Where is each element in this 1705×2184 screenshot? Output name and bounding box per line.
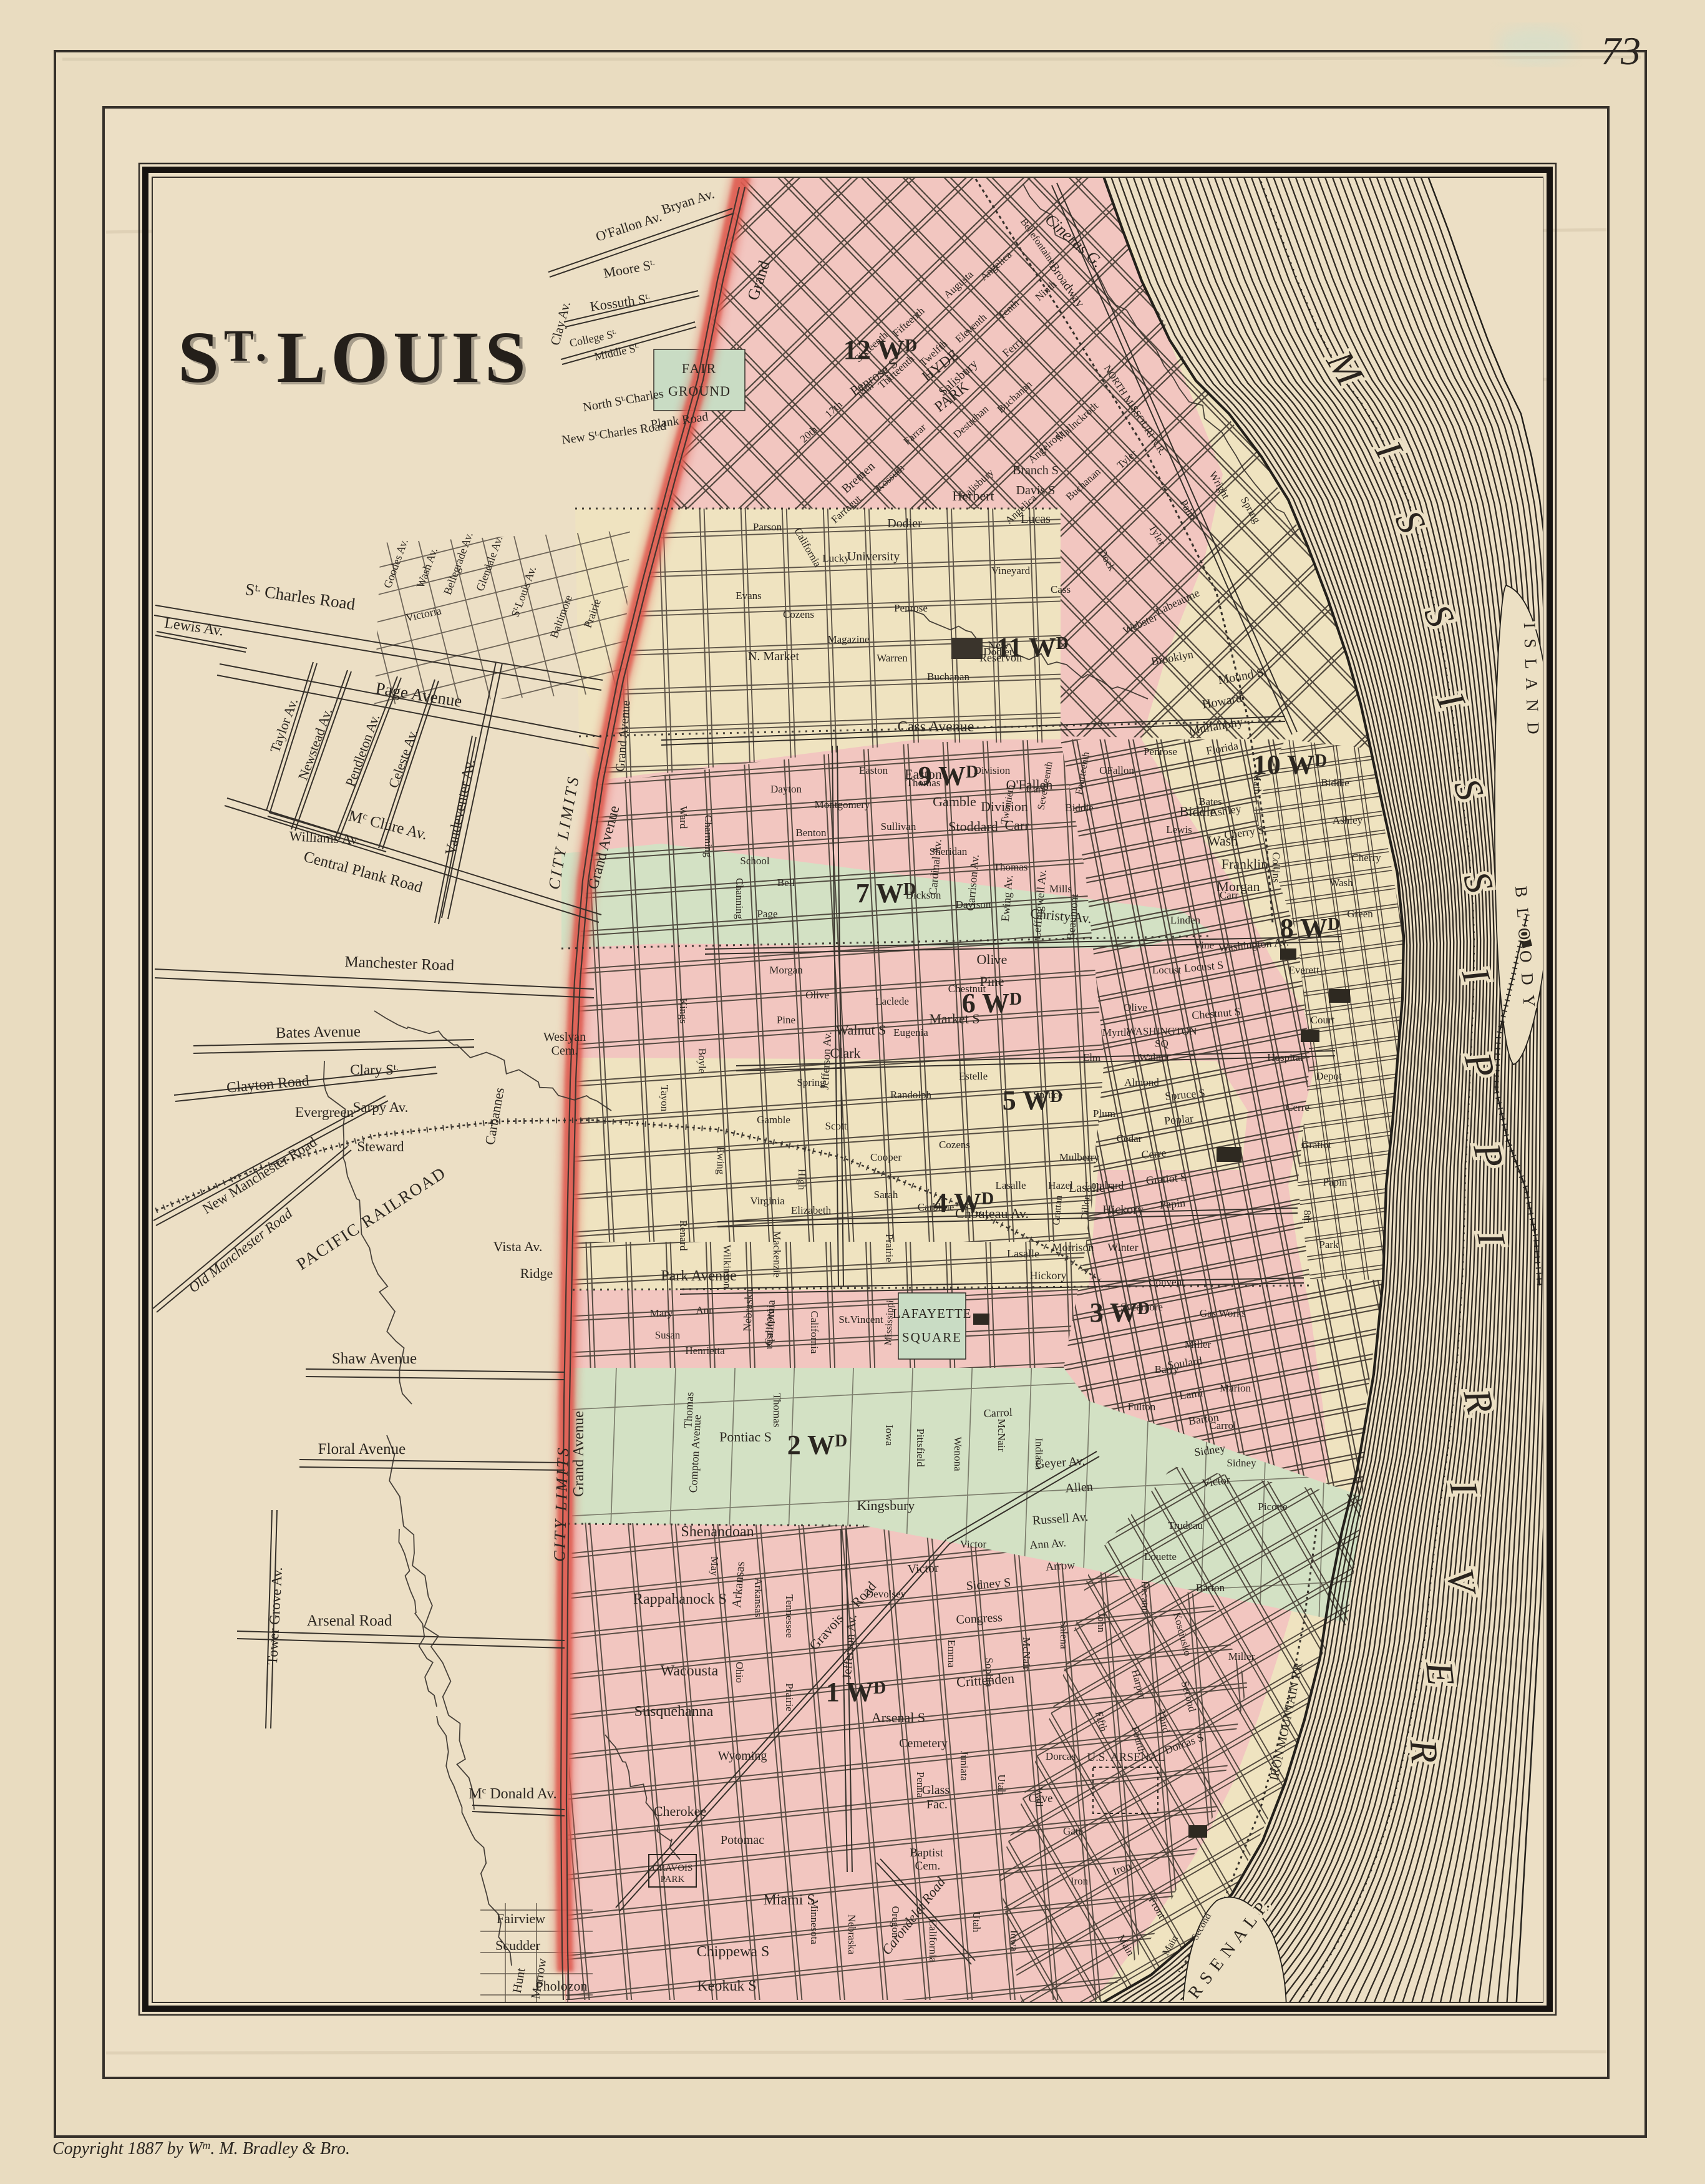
svg-text:Kings: Kings — [678, 998, 689, 1024]
svg-text:Picotte: Picotte — [1258, 1501, 1287, 1513]
svg-text:Iron: Iron — [1071, 1875, 1089, 1887]
svg-text:Boyle: Boyle — [696, 1048, 708, 1074]
svg-text:St.Vincent: St.Vincent — [838, 1314, 883, 1325]
svg-text:Scott: Scott — [825, 1120, 847, 1132]
svg-text:Papin: Papin — [1159, 1196, 1186, 1211]
svg-text:Sycamore: Sycamore — [1120, 1301, 1163, 1313]
svg-text:Magazine: Magazine — [827, 633, 869, 645]
svg-text:FAIR: FAIR — [682, 361, 717, 376]
svg-text:Vista Av.: Vista Av. — [493, 1239, 543, 1254]
svg-text:Almond: Almond — [1124, 1076, 1159, 1088]
svg-text:Park: Park — [1319, 1239, 1339, 1250]
svg-text:Dorcas: Dorcas — [1046, 1750, 1076, 1762]
svg-text:Miami S: Miami S — [763, 1892, 815, 1908]
svg-text:Prairie: Prairie — [883, 1234, 895, 1262]
svg-text:Carrol: Carrol — [983, 1406, 1013, 1420]
svg-text:Mc Donald Av.: Mc Donald Av. — [469, 1786, 556, 1802]
svg-text:Benton: Benton — [795, 827, 827, 839]
svg-text:Lasalle: Lasalle — [995, 1179, 1026, 1191]
svg-text:E: E — [1417, 1659, 1462, 1688]
svg-text:Trudeau: Trudeau — [1168, 1519, 1203, 1531]
svg-text:Salena: Salena — [1058, 1621, 1070, 1649]
svg-text:Grand Avenue: Grand Avenue — [571, 1411, 587, 1497]
svg-text:U.S. ARSENAL: U.S. ARSENAL — [1087, 1751, 1165, 1764]
svg-text:Randolph: Randolph — [890, 1089, 932, 1101]
svg-text:Ohio: Ohio — [734, 1662, 746, 1683]
svg-text:Green: Green — [1347, 908, 1373, 920]
svg-text:Morgan: Morgan — [769, 964, 803, 976]
svg-text:Ashley: Ashley — [1333, 814, 1363, 826]
svg-text:Marion: Marion — [1220, 1382, 1251, 1394]
svg-text:Potomac: Potomac — [721, 1833, 764, 1847]
svg-text:Math: Math — [1251, 772, 1263, 794]
svg-text:May: May — [709, 1556, 721, 1576]
svg-text:Sheridan: Sheridan — [930, 846, 968, 857]
svg-text:Mills: Mills — [1049, 883, 1072, 895]
svg-text:Hickory: Hickory — [1102, 1203, 1144, 1217]
svg-text:SQUARE: SQUARE — [902, 1330, 962, 1345]
svg-text:Susquehanna: Susquehanna — [634, 1704, 714, 1720]
svg-text:Ewing: Ewing — [715, 1147, 727, 1175]
svg-text:Olive: Olive — [977, 952, 1008, 967]
svg-text:Juniata: Juniata — [958, 1751, 970, 1782]
svg-text:High: High — [796, 1169, 808, 1191]
svg-text:Eugenia: Eugenia — [893, 1026, 928, 1038]
svg-text:Arkansas: Arkansas — [752, 1577, 764, 1617]
svg-text:Prairie: Prairie — [784, 1683, 795, 1711]
svg-text:Cem.: Cem. — [915, 1860, 941, 1873]
svg-text:Cedar: Cedar — [1117, 1133, 1142, 1144]
svg-text:SQ: SQ — [1155, 1038, 1168, 1050]
svg-text:Clary St.: Clary St. — [350, 1062, 399, 1078]
svg-text:Montgomery: Montgomery — [815, 799, 870, 811]
svg-text:Barry: Barry — [1155, 1363, 1179, 1375]
svg-text:Wilkinson: Wilkinson — [721, 1245, 733, 1289]
svg-text:School: School — [740, 855, 770, 867]
svg-text:University: University — [847, 550, 900, 563]
svg-text:Gas Works: Gas Works — [1200, 1307, 1246, 1319]
svg-text:Papin: Papin — [1323, 1176, 1348, 1188]
svg-text:Plum: Plum — [1093, 1108, 1115, 1119]
svg-text:Elizabeth: Elizabeth — [791, 1204, 832, 1216]
svg-text:Baptist: Baptist — [910, 1846, 944, 1860]
svg-text:Estelle: Estelle — [959, 1070, 988, 1082]
svg-text:Utah: Utah — [996, 1774, 1008, 1795]
svg-text:Parson: Parson — [753, 521, 782, 533]
svg-text:Everett: Everett — [1288, 964, 1319, 976]
svg-text:Tennessee: Tennessee — [784, 1594, 795, 1638]
svg-text:Cozens: Cozens — [939, 1139, 970, 1151]
svg-text:Minnesota: Minnesota — [809, 1899, 820, 1944]
svg-text:Lucky: Lucky — [822, 552, 850, 564]
svg-text:Iowa: Iowa — [883, 1425, 895, 1446]
svg-text:Bates Avenue: Bates Avenue — [275, 1023, 361, 1041]
svg-text:Mulberry: Mulberry — [1059, 1151, 1100, 1163]
svg-text:Cooper: Cooper — [870, 1151, 901, 1163]
svg-text:Carrol: Carrol — [1209, 1420, 1236, 1431]
svg-text:Utah: Utah — [971, 1911, 983, 1933]
svg-text:Wacousta: Wacousta — [661, 1663, 719, 1679]
svg-text:Hickory: Hickory — [1030, 1269, 1067, 1282]
svg-text:Sarah: Sarah — [874, 1189, 898, 1201]
svg-text:California: California — [927, 1919, 939, 1962]
svg-text:Convent: Convent — [1149, 1276, 1185, 1288]
svg-text:Devolsey: Devolsey — [866, 1588, 906, 1600]
svg-text:Fac.: Fac. — [926, 1798, 948, 1811]
svg-text:Elm: Elm — [1083, 1051, 1100, 1063]
svg-text:Carr: Carr — [1026, 783, 1046, 795]
svg-text:Victor: Victor — [960, 1538, 987, 1550]
svg-text:Reservoir: Reservoir — [979, 651, 1023, 664]
svg-text:Nebraska: Nebraska — [741, 1289, 755, 1332]
svg-text:Cerre: Cerre — [1286, 1101, 1309, 1113]
svg-text:Walnut: Walnut — [1139, 1051, 1170, 1063]
svg-text:Hospital: Hospital — [1267, 1051, 1303, 1063]
svg-text:McNair: McNair — [996, 1419, 1008, 1452]
svg-text:Lewis: Lewis — [1166, 824, 1192, 836]
svg-text:Franklin: Franklin — [1222, 856, 1268, 872]
svg-text:Penrose: Penrose — [1144, 746, 1177, 758]
svg-text:California: California — [809, 1311, 820, 1354]
svg-text:John: John — [1095, 1612, 1107, 1633]
svg-text:LAFAYETTE: LAFAYETTE — [893, 1306, 972, 1321]
svg-text:Collins: Collins — [1270, 852, 1282, 882]
svg-text:Emma: Emma — [946, 1640, 958, 1668]
svg-text:Cherokee: Cherokee — [654, 1803, 706, 1819]
svg-text:Thomas: Thomas — [771, 1393, 783, 1428]
svg-text:Wenona: Wenona — [952, 1436, 964, 1471]
svg-text:Arsenal S: Arsenal S — [872, 1710, 925, 1725]
svg-text:Cozens: Cozens — [783, 608, 814, 620]
svg-text:Carr: Carr — [1220, 889, 1239, 901]
svg-text:Bell: Bell — [777, 877, 795, 889]
svg-text:Dayton: Dayton — [770, 783, 802, 795]
svg-text:Cemetery: Cemetery — [899, 1737, 948, 1750]
svg-text:I S L A N D: I S L A N D — [1520, 622, 1543, 738]
svg-text:Carbline: Carbline — [918, 1201, 955, 1213]
svg-text:Rappahanock S: Rappahanock S — [633, 1591, 727, 1607]
svg-text:Court: Court — [1311, 1014, 1335, 1026]
svg-text:Floral Avenue: Floral Avenue — [318, 1441, 406, 1458]
svg-text:Renard: Renard — [678, 1220, 689, 1251]
svg-text:Gamble: Gamble — [757, 1114, 790, 1126]
svg-text:Cem.: Cem. — [551, 1044, 578, 1058]
svg-text:Miller: Miller — [1228, 1650, 1255, 1662]
svg-text:Channing: Channing — [734, 878, 746, 920]
svg-text:Clark: Clark — [830, 1045, 861, 1061]
svg-text:Biddle: Biddle — [1321, 777, 1349, 789]
svg-text:Ann Av.: Ann Av. — [1029, 1536, 1067, 1551]
svg-text:Bates: Bates — [1198, 796, 1222, 807]
svg-text:OFallon: OFallon — [1099, 764, 1134, 776]
svg-text:Walnut S: Walnut S — [836, 1022, 887, 1038]
svg-text:R: R — [1402, 1737, 1446, 1765]
svg-text:Fairview: Fairview — [497, 1911, 545, 1926]
svg-text:Winter: Winter — [1107, 1241, 1138, 1254]
svg-text:Scudder: Scudder — [495, 1938, 541, 1953]
svg-text:Linden: Linden — [1170, 914, 1201, 926]
svg-text:Pittsfield: Pittsfield — [915, 1428, 926, 1467]
svg-text:Lucas: Lucas — [1021, 512, 1051, 526]
svg-text:Olive: Olive — [1124, 1002, 1147, 1013]
svg-text:Ward: Ward — [678, 806, 689, 829]
svg-text:Oregon: Oregon — [890, 1906, 901, 1938]
svg-text:Evergreen: Evergreen — [295, 1104, 354, 1120]
svg-text:Henrietta: Henrietta — [685, 1345, 725, 1357]
svg-text:Pontiac S: Pontiac S — [719, 1429, 772, 1445]
svg-text:Evans: Evans — [736, 590, 762, 602]
svg-text:Wash: Wash — [1329, 877, 1353, 889]
svg-text:Division: Division — [974, 764, 1011, 776]
svg-text:Steward: Steward — [357, 1139, 404, 1154]
svg-text:Davis S: Davis S — [1016, 484, 1056, 497]
svg-text:Ann: Ann — [696, 1304, 714, 1316]
svg-text:Louette: Louette — [1144, 1551, 1177, 1562]
svg-text:Sarpy Av.: Sarpy Av. — [353, 1099, 409, 1115]
svg-text:Locust: Locust — [1152, 964, 1182, 976]
svg-text:Myrtle: Myrtle — [1102, 1026, 1131, 1038]
svg-text:Lasalle: Lasalle — [1007, 1247, 1039, 1260]
svg-text:Gratiot: Gratiot — [1301, 1139, 1331, 1151]
svg-text:Charming: Charming — [702, 815, 714, 857]
svg-text:Wyoming: Wyoming — [718, 1749, 767, 1763]
svg-text:Cerre: Cerre — [1141, 1146, 1167, 1161]
svg-text:Sullivan: Sullivan — [881, 821, 916, 832]
svg-text:Wall: Wall — [1033, 1787, 1045, 1807]
svg-text:Sophia: Sophia — [983, 1657, 995, 1687]
svg-text:Spring: Spring — [797, 1076, 825, 1088]
svg-text:Vineyard: Vineyard — [991, 565, 1031, 577]
svg-text:Ridge: Ridge — [520, 1265, 553, 1281]
svg-text:Poplar: Poplar — [1163, 1112, 1194, 1127]
svg-text:Stoddard: Stoddard — [948, 819, 998, 834]
svg-text:Victor: Victor — [907, 1561, 939, 1577]
svg-text:Thomas: Thomas — [994, 861, 1028, 873]
svg-text:Cherry: Cherry — [1351, 852, 1381, 864]
svg-text:PARK: PARK — [661, 1874, 685, 1884]
svg-text:Allen: Allen — [1065, 1480, 1094, 1495]
svg-text:Kingsbury: Kingsbury — [857, 1498, 915, 1513]
svg-text:Barton: Barton — [1196, 1582, 1225, 1594]
svg-text:Pholozon: Pholozon — [535, 1978, 587, 1994]
svg-text:Easton: Easton — [859, 764, 888, 776]
svg-text:Morrison: Morrison — [1052, 1241, 1094, 1254]
svg-text:Keokuk S: Keokuk S — [697, 1978, 756, 1994]
svg-text:N. Market: N. Market — [748, 650, 800, 663]
svg-text:Arsenal Road: Arsenal Road — [307, 1612, 392, 1629]
svg-text:McNair: McNair — [1021, 1637, 1032, 1670]
svg-text:GRAVOIS: GRAVOIS — [653, 1863, 693, 1873]
svg-text:Sidney: Sidney — [1227, 1457, 1256, 1469]
svg-text:Warren: Warren — [877, 652, 908, 664]
svg-text:Congress: Congress — [956, 1611, 1003, 1627]
svg-text:Mackenzie: Mackenzie — [771, 1231, 783, 1278]
svg-text:Virginia: Virginia — [750, 1195, 785, 1207]
svg-text:Depot: Depot — [1316, 1070, 1342, 1082]
svg-text:GROUND: GROUND — [668, 383, 731, 399]
svg-text:Arrow: Arrow — [1045, 1558, 1075, 1572]
svg-text:Decatur: Decatur — [1139, 1581, 1151, 1614]
svg-text:Chestnut: Chestnut — [948, 983, 986, 995]
svg-text:Cass: Cass — [1051, 583, 1071, 595]
svg-text:Dodier: Dodier — [887, 517, 922, 530]
svg-text:Hazel: Hazel — [1048, 1179, 1073, 1191]
svg-text:Iowa: Iowa — [1008, 1930, 1020, 1951]
svg-text:Susan: Susan — [655, 1329, 681, 1341]
svg-text:Fulton: Fulton — [1128, 1401, 1156, 1413]
svg-text:Dillon: Dillon — [1079, 1194, 1092, 1220]
svg-text:Chippewa S: Chippewa S — [697, 1944, 770, 1960]
svg-text:Copyright 1887 by Wm. M. Bradl: Copyright 1887 by Wm. M. Bradley & Bro. — [52, 2139, 350, 2158]
svg-text:Lombard: Lombard — [1085, 1179, 1124, 1191]
svg-text:Dickson: Dickson — [906, 889, 941, 901]
svg-text:Nebraska: Nebraska — [765, 1309, 777, 1350]
svg-text:Mary: Mary — [650, 1307, 673, 1319]
svg-text:Shenandoan: Shenandoan — [681, 1524, 754, 1540]
svg-text:Market S: Market S — [929, 1011, 979, 1026]
svg-text:Laclede: Laclede — [875, 995, 909, 1007]
svg-text:Nebraska: Nebraska — [846, 1914, 858, 1955]
svg-text:Indiana: Indiana — [1033, 1438, 1045, 1470]
svg-text:Biddle: Biddle — [1065, 802, 1093, 814]
svg-text:Weslyan: Weslyan — [543, 1030, 586, 1044]
svg-text:New: New — [988, 639, 1009, 651]
svg-text:Thomas: Thomas — [906, 777, 941, 789]
svg-text:Chouteau Av.: Chouteau Av. — [955, 1206, 1029, 1221]
svg-text:Branch S: Branch S — [1013, 464, 1059, 477]
svg-text:Pine: Pine — [777, 1014, 795, 1026]
svg-text:Davison: Davison — [956, 899, 991, 910]
svg-text:Miller: Miller — [1185, 1338, 1212, 1350]
svg-text:73: 73 — [1601, 29, 1641, 73]
svg-text:8th: 8th — [1301, 1210, 1313, 1224]
svg-text:Gate: Gate — [1063, 1825, 1083, 1837]
svg-text:Shaw Avenue: Shaw Avenue — [332, 1350, 417, 1367]
svg-text:Penrose: Penrose — [894, 602, 928, 614]
svg-text:Thomas: Thomas — [682, 1392, 696, 1428]
svg-text:Buchanan: Buchanan — [927, 671, 969, 683]
svg-text:Spruce: Spruce — [1033, 1089, 1062, 1101]
svg-text:Cass Avenue: Cass Avenue — [898, 719, 974, 735]
svg-text:WASHINGTON: WASHINGTON — [1126, 1025, 1197, 1037]
svg-text:Tayon: Tayon — [659, 1085, 671, 1112]
svg-text:Page: Page — [757, 908, 777, 920]
svg-text:Vine: Vine — [1194, 939, 1214, 951]
svg-text:Penna: Penna — [915, 1772, 926, 1798]
svg-text:Gamble: Gamble — [933, 794, 976, 809]
svg-text:Olive: Olive — [805, 989, 829, 1001]
